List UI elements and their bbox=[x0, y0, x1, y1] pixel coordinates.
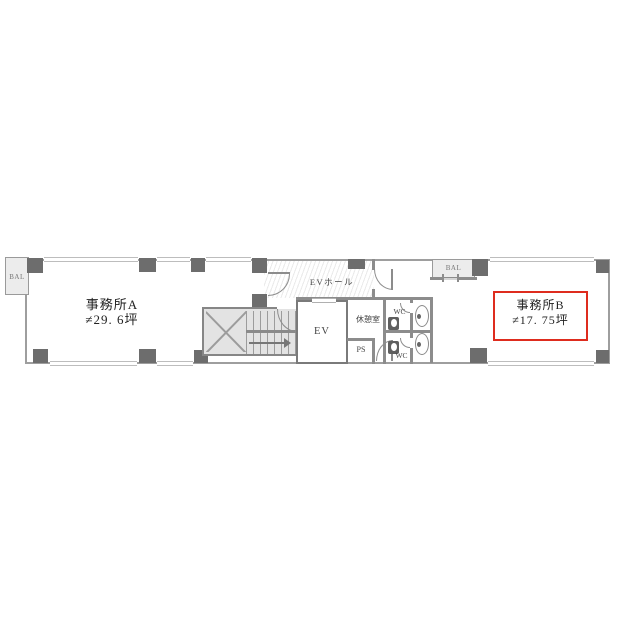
window-icon bbox=[157, 361, 193, 366]
window-tick bbox=[457, 274, 459, 282]
wall bbox=[347, 338, 375, 341]
column bbox=[139, 349, 156, 363]
wall bbox=[410, 300, 413, 303]
ev-hall-label: EVホール bbox=[292, 276, 372, 288]
window-icon bbox=[206, 257, 251, 262]
basin-icon bbox=[415, 305, 429, 327]
column bbox=[252, 258, 267, 273]
column bbox=[596, 260, 609, 273]
window-icon bbox=[488, 361, 594, 366]
balcony-left: BAL bbox=[5, 257, 29, 295]
stair-arrow-icon bbox=[249, 342, 285, 344]
office-a-area: ≠29. 6坪 bbox=[50, 312, 174, 327]
window-icon bbox=[44, 257, 138, 262]
elevator-label: EV bbox=[296, 326, 348, 337]
balcony-left-label: BAL bbox=[9, 273, 25, 281]
basin-icon bbox=[415, 333, 429, 355]
window-icon bbox=[157, 257, 190, 262]
column bbox=[348, 259, 365, 269]
rest-room-label: 休憩室 bbox=[350, 314, 386, 325]
balcony-right: BAL bbox=[432, 259, 475, 278]
wc-north-label: WC bbox=[388, 307, 411, 316]
column bbox=[596, 350, 609, 363]
wc-south-label: WC bbox=[390, 351, 413, 360]
column bbox=[472, 259, 488, 276]
balcony-right-label: BAL bbox=[446, 264, 462, 272]
office-b-area: ≠17. 75坪 bbox=[493, 313, 588, 328]
column bbox=[139, 258, 156, 272]
stair-arrow-head bbox=[284, 338, 291, 348]
column bbox=[470, 348, 487, 363]
window-icon bbox=[490, 257, 594, 262]
pipe-shaft-label: PS bbox=[348, 345, 374, 354]
office-a-label: 事務所A ≠29. 6坪 bbox=[50, 297, 174, 327]
office-b-label: 事務所B ≠17. 75坪 bbox=[493, 298, 588, 328]
window-icon bbox=[50, 361, 137, 366]
column bbox=[33, 349, 48, 363]
balcony-door-icon bbox=[443, 278, 457, 280]
window-tick bbox=[442, 274, 444, 282]
floor-plan: BAL BAL bbox=[0, 0, 630, 630]
toilet-icon bbox=[388, 317, 399, 330]
column bbox=[27, 258, 43, 273]
stair-landing bbox=[206, 311, 246, 352]
office-a-name: 事務所A bbox=[50, 297, 174, 312]
office-b-name: 事務所B bbox=[493, 298, 588, 313]
column bbox=[191, 258, 205, 272]
wall bbox=[410, 313, 413, 338]
elevator-door-icon bbox=[312, 298, 336, 303]
